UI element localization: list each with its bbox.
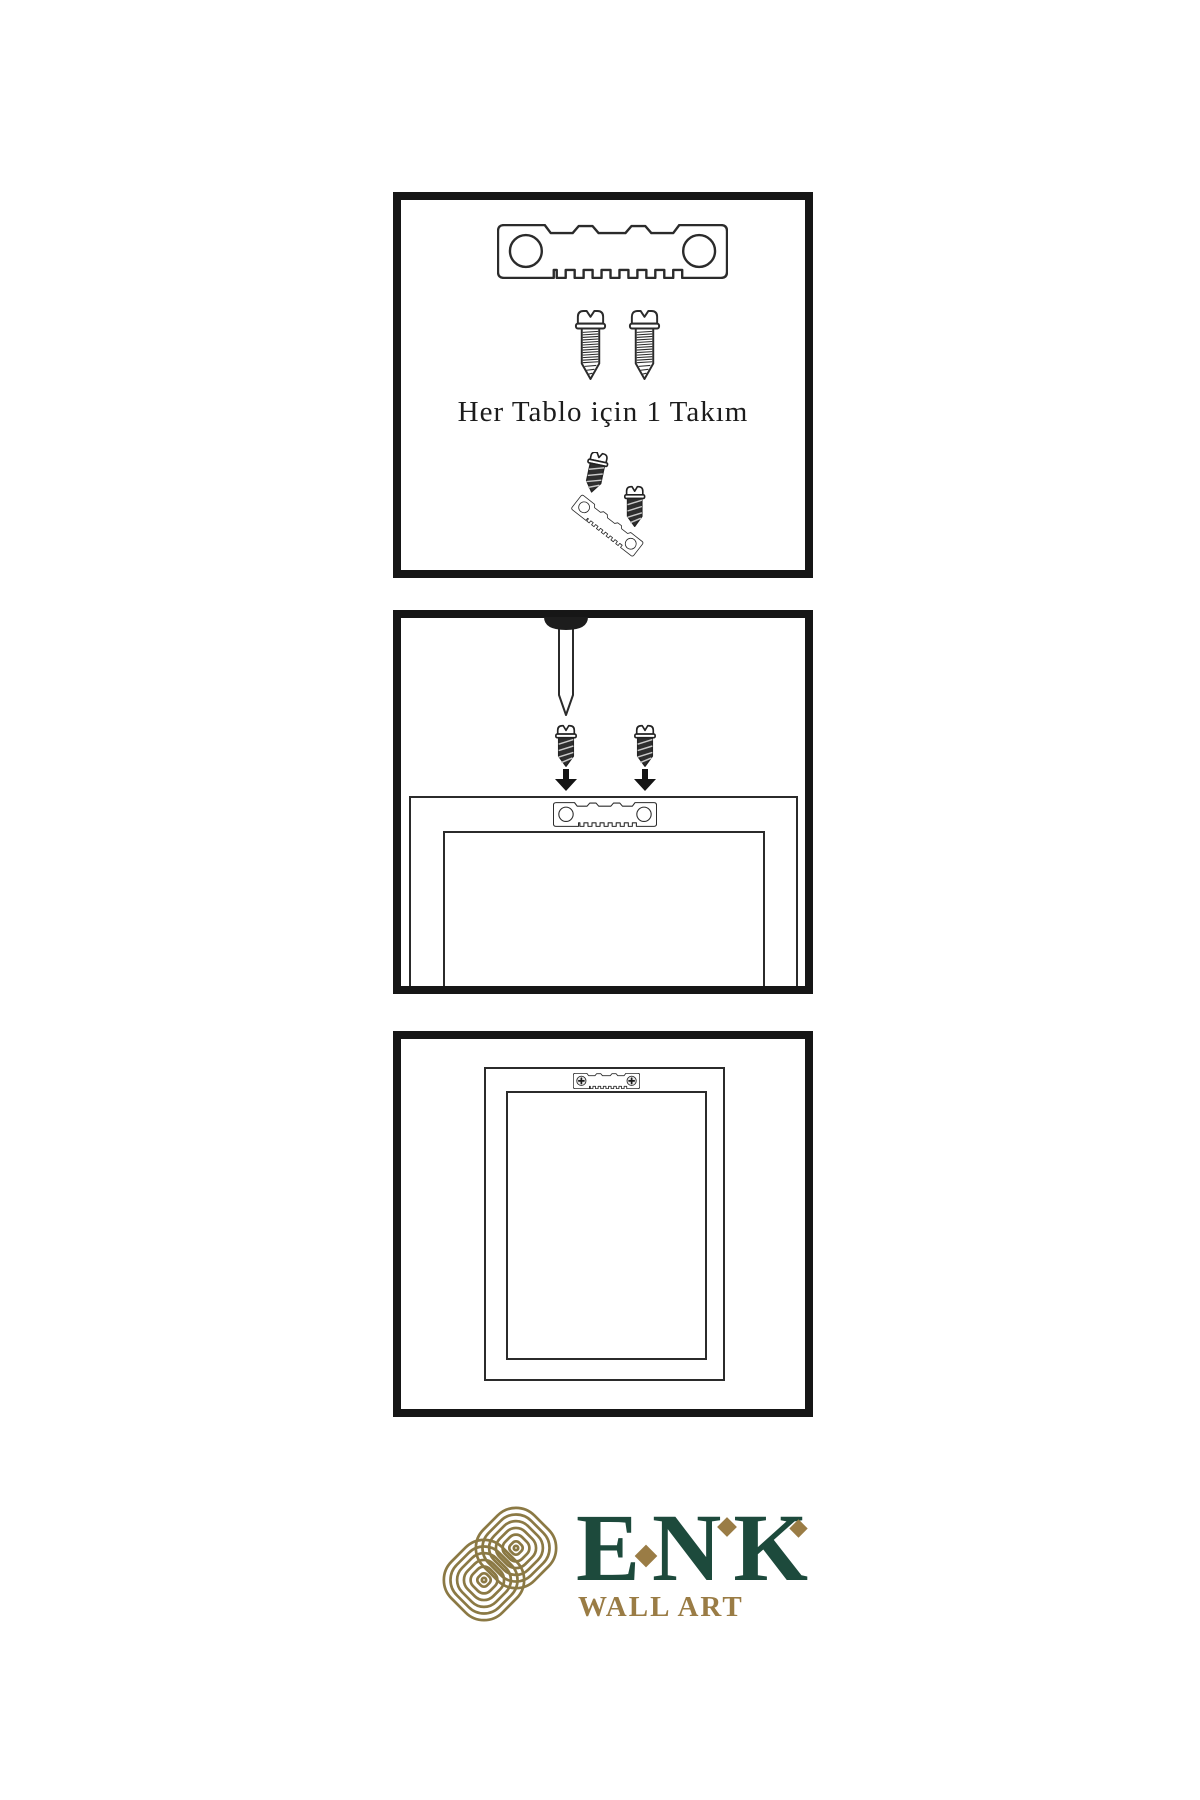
screw-icon [573,307,608,383]
screw-icon [627,307,662,383]
mounted-hanger-icon [573,1073,640,1089]
panel-step-1-hardware-kit: Her Tablo için 1 Takım [393,192,813,578]
brand-name: ENK [576,1500,820,1596]
dark-screw-icon [554,723,578,769]
brand-tagline: WALL ART [578,1591,744,1624]
mounting-screw-icon [625,487,645,527]
down-arrow-icon [554,769,578,791]
mounting-screw-icon [582,452,610,494]
sawtooth-hanger-icon [553,802,657,827]
picture-frame-inner [506,1091,707,1360]
angled-hanger-mounting-icon [570,452,665,564]
brand-letter: N [652,1500,733,1596]
brand-letter: K [733,1500,820,1596]
panel-step-3-hang-frame [393,1031,813,1417]
brand-text: ENK WALL ART [576,1500,820,1596]
brand-logo: ENK WALL ART [438,1502,778,1632]
kit-caption: Her Tablo için 1 Takım [401,396,805,429]
dark-screw-icon [633,723,657,769]
knot-emblem-icon [438,1502,562,1626]
down-arrow-icon [633,769,657,791]
panel-step-2-attach-hanger [393,610,813,994]
sawtooth-hanger-icon [497,224,728,279]
brand-letter: E [576,1500,652,1596]
wall-nail-icon [542,617,590,719]
picture-frame-inner [443,831,765,986]
instruction-sheet: Her Tablo için 1 Takım [0,0,1200,1800]
